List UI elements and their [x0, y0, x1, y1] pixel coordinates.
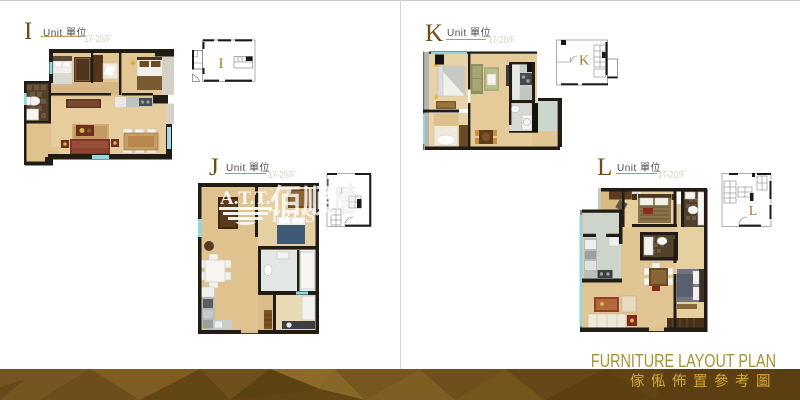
svg-text:L: L — [749, 204, 758, 219]
svg-text:K: K — [579, 54, 589, 69]
svg-text:佰順: 佰順 — [270, 183, 334, 219]
svg-text:A.T.T.: A.T.T. — [220, 188, 271, 209]
svg-text:唐: 唐 — [333, 183, 355, 218]
svg-text:I: I — [219, 56, 224, 72]
